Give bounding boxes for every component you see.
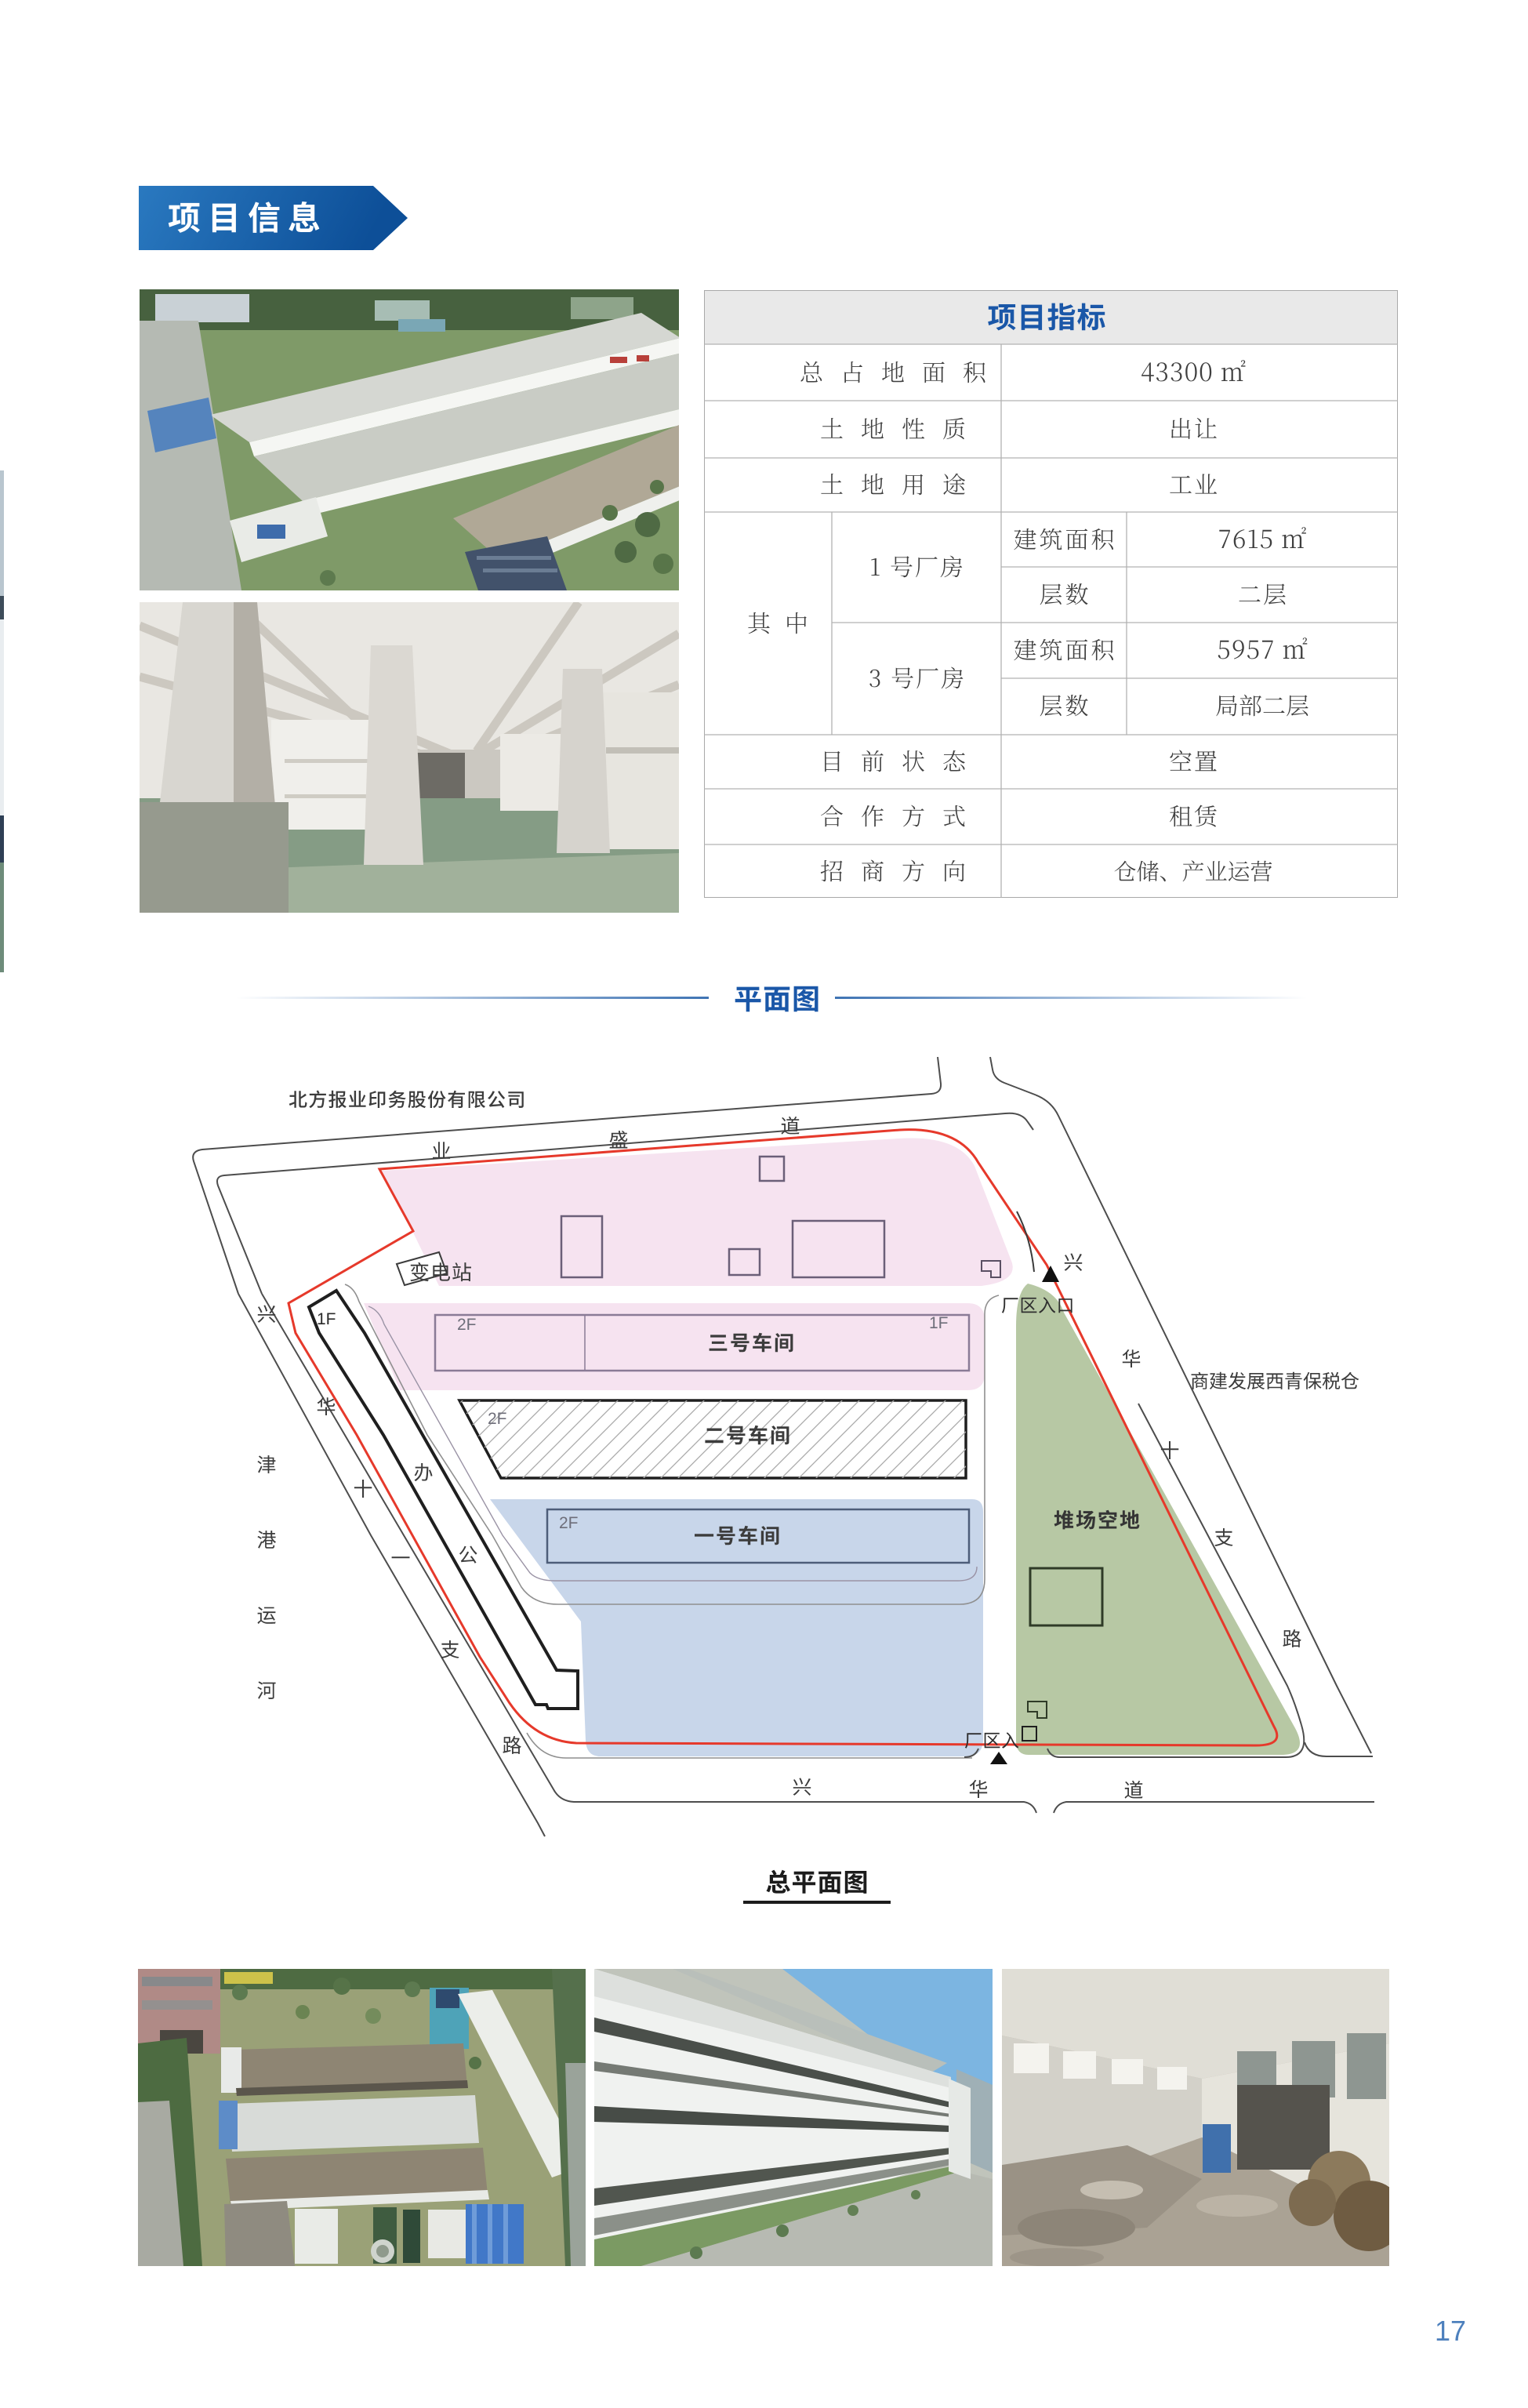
- svg-text:2F: 2F: [457, 1316, 477, 1334]
- svg-text:1F: 1F: [929, 1314, 949, 1332]
- svg-text:2F: 2F: [559, 1514, 579, 1532]
- svg-text:2F: 2F: [488, 1410, 507, 1428]
- svg-text:1F: 1F: [317, 1310, 336, 1328]
